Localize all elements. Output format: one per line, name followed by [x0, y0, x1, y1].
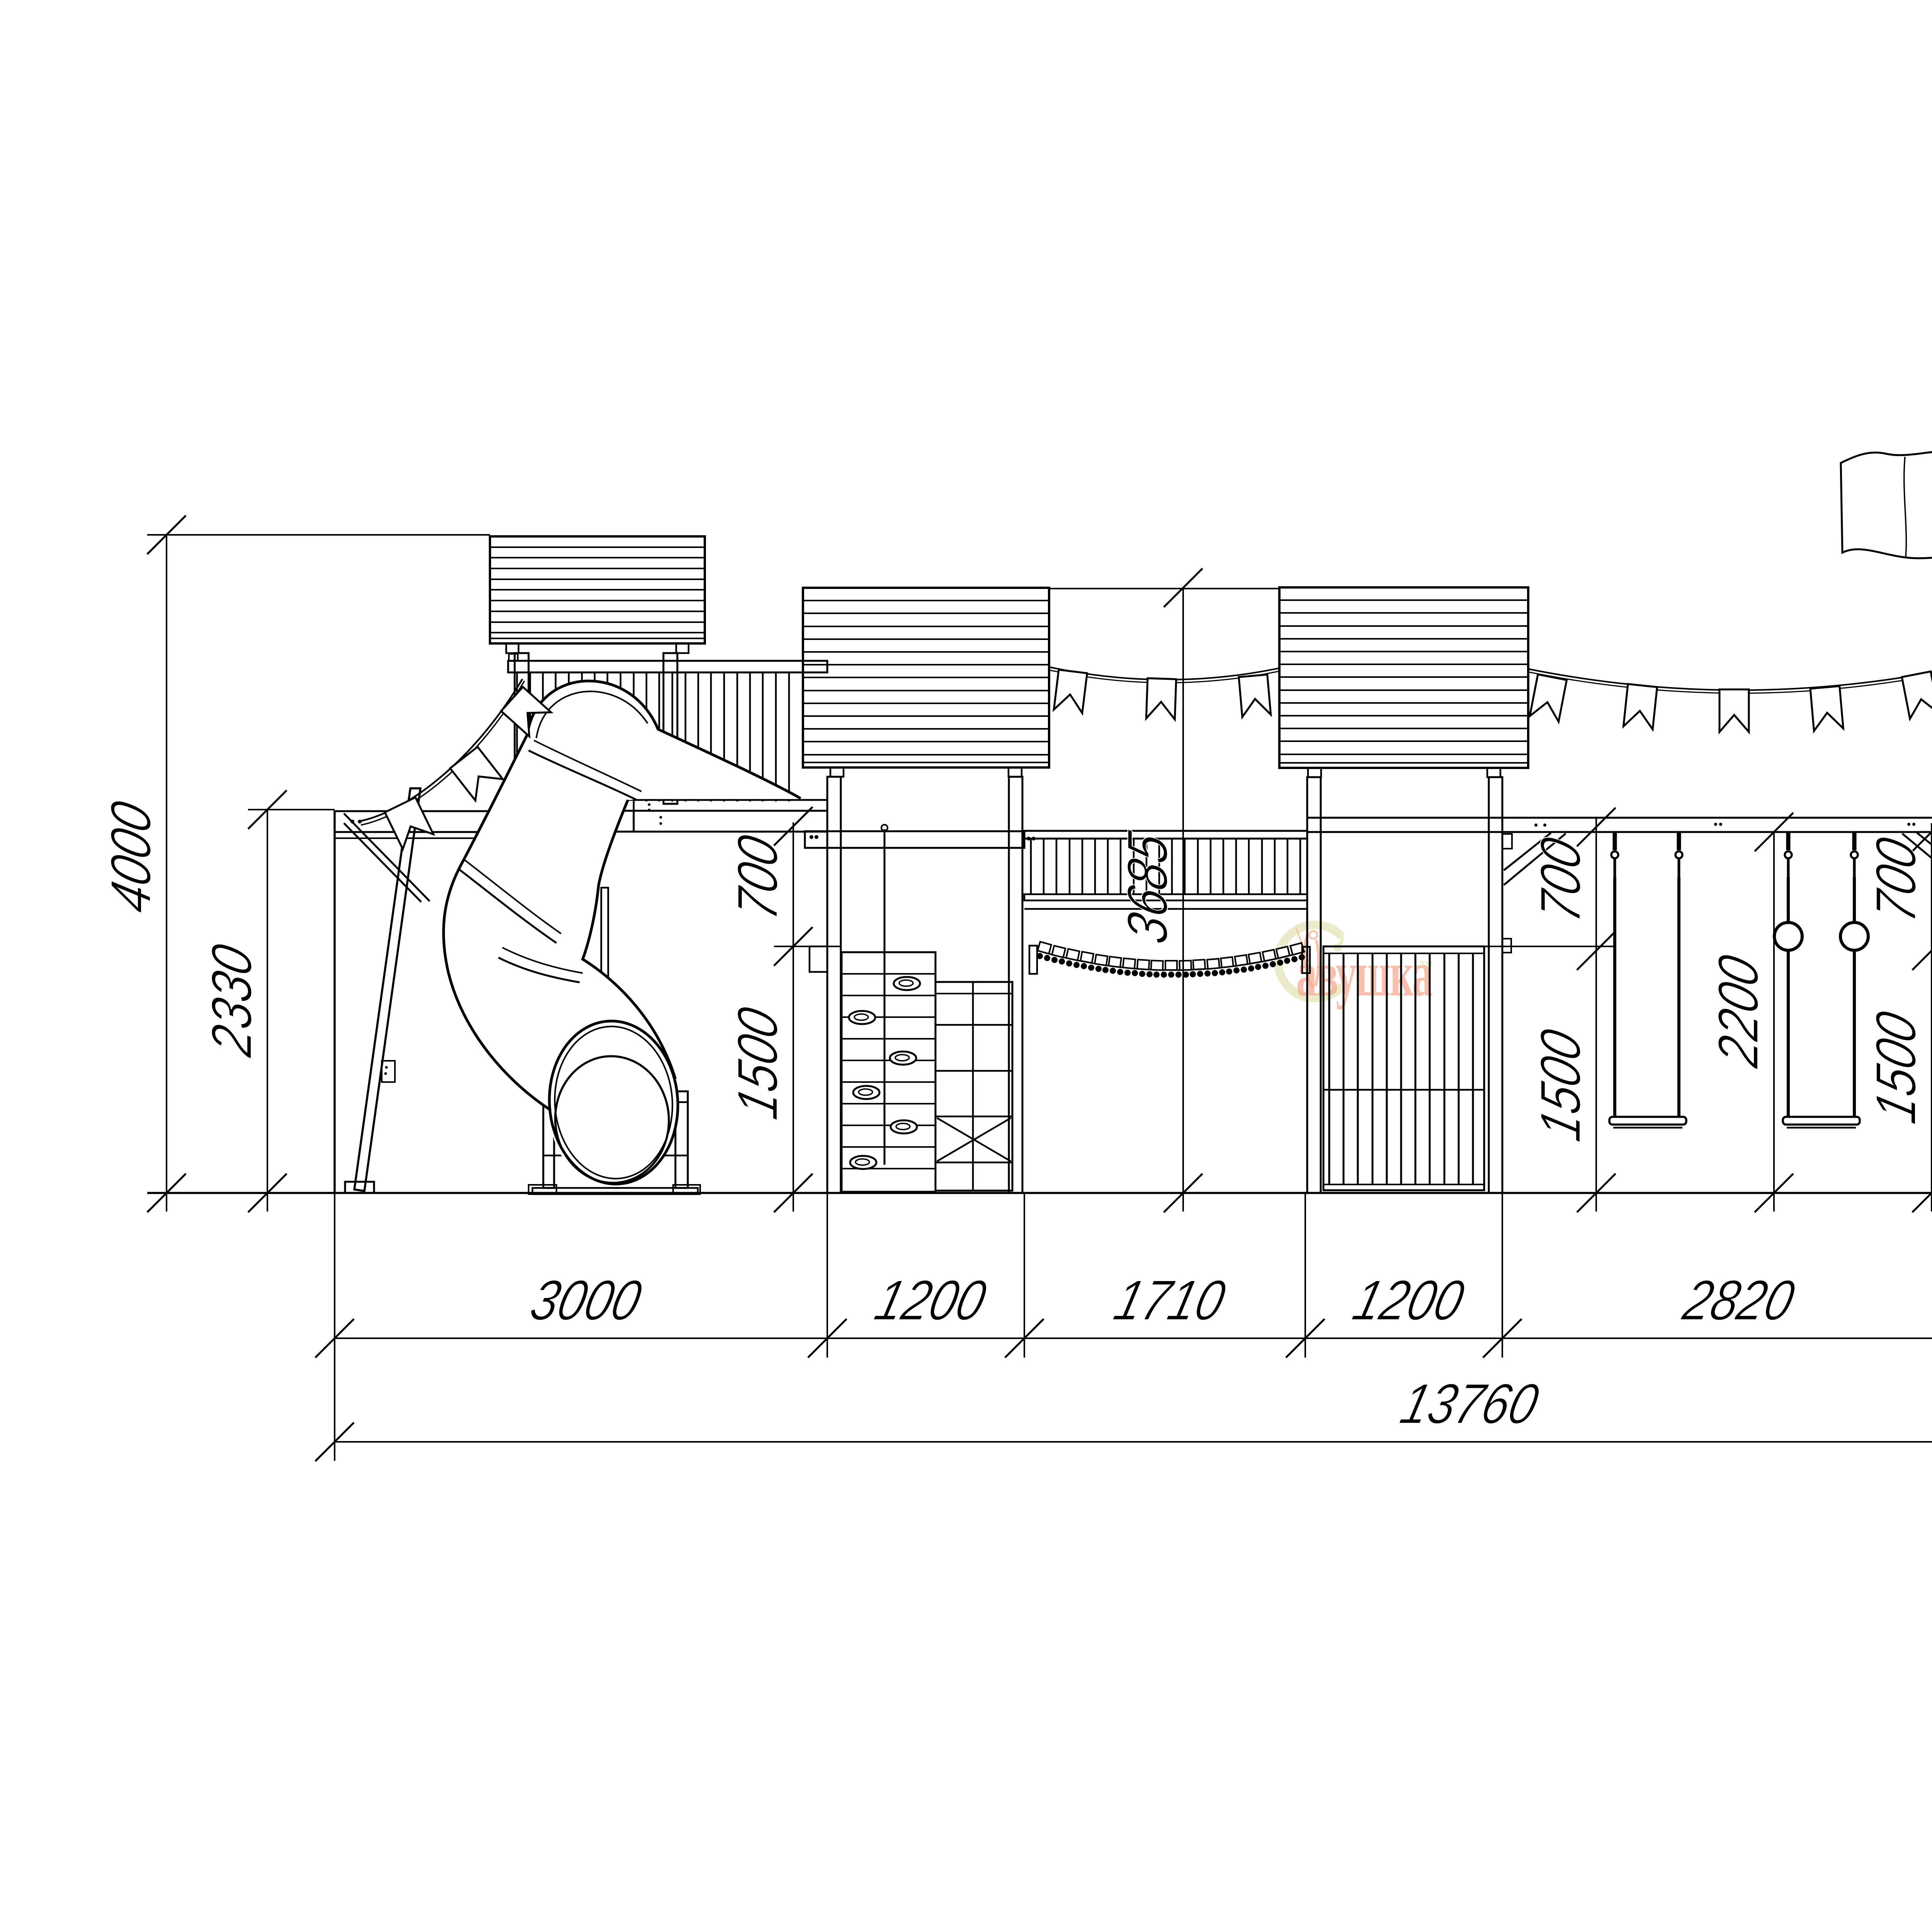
- svg-text:1710: 1710: [1108, 1269, 1231, 1332]
- svg-text:3685: 3685: [1116, 826, 1179, 949]
- svg-text:1200: 1200: [1347, 1269, 1470, 1332]
- svg-text:1500: 1500: [726, 1001, 789, 1125]
- svg-text:700: 700: [726, 829, 789, 926]
- svg-text:2200: 2200: [1707, 949, 1770, 1073]
- svg-text:1500: 1500: [1864, 1006, 1928, 1129]
- svg-text:13760: 13760: [1395, 1372, 1544, 1436]
- svg-text:1500: 1500: [1529, 1023, 1592, 1147]
- svg-text:3000: 3000: [524, 1269, 648, 1332]
- svg-text:700: 700: [1864, 832, 1928, 928]
- svg-text:4000: 4000: [99, 795, 163, 919]
- svg-text:авушка: авушка: [1296, 938, 1432, 1010]
- svg-text:2330: 2330: [200, 938, 264, 1062]
- svg-text:2820: 2820: [1677, 1269, 1801, 1332]
- svg-text:1200: 1200: [869, 1269, 992, 1332]
- svg-text:700: 700: [1529, 832, 1592, 928]
